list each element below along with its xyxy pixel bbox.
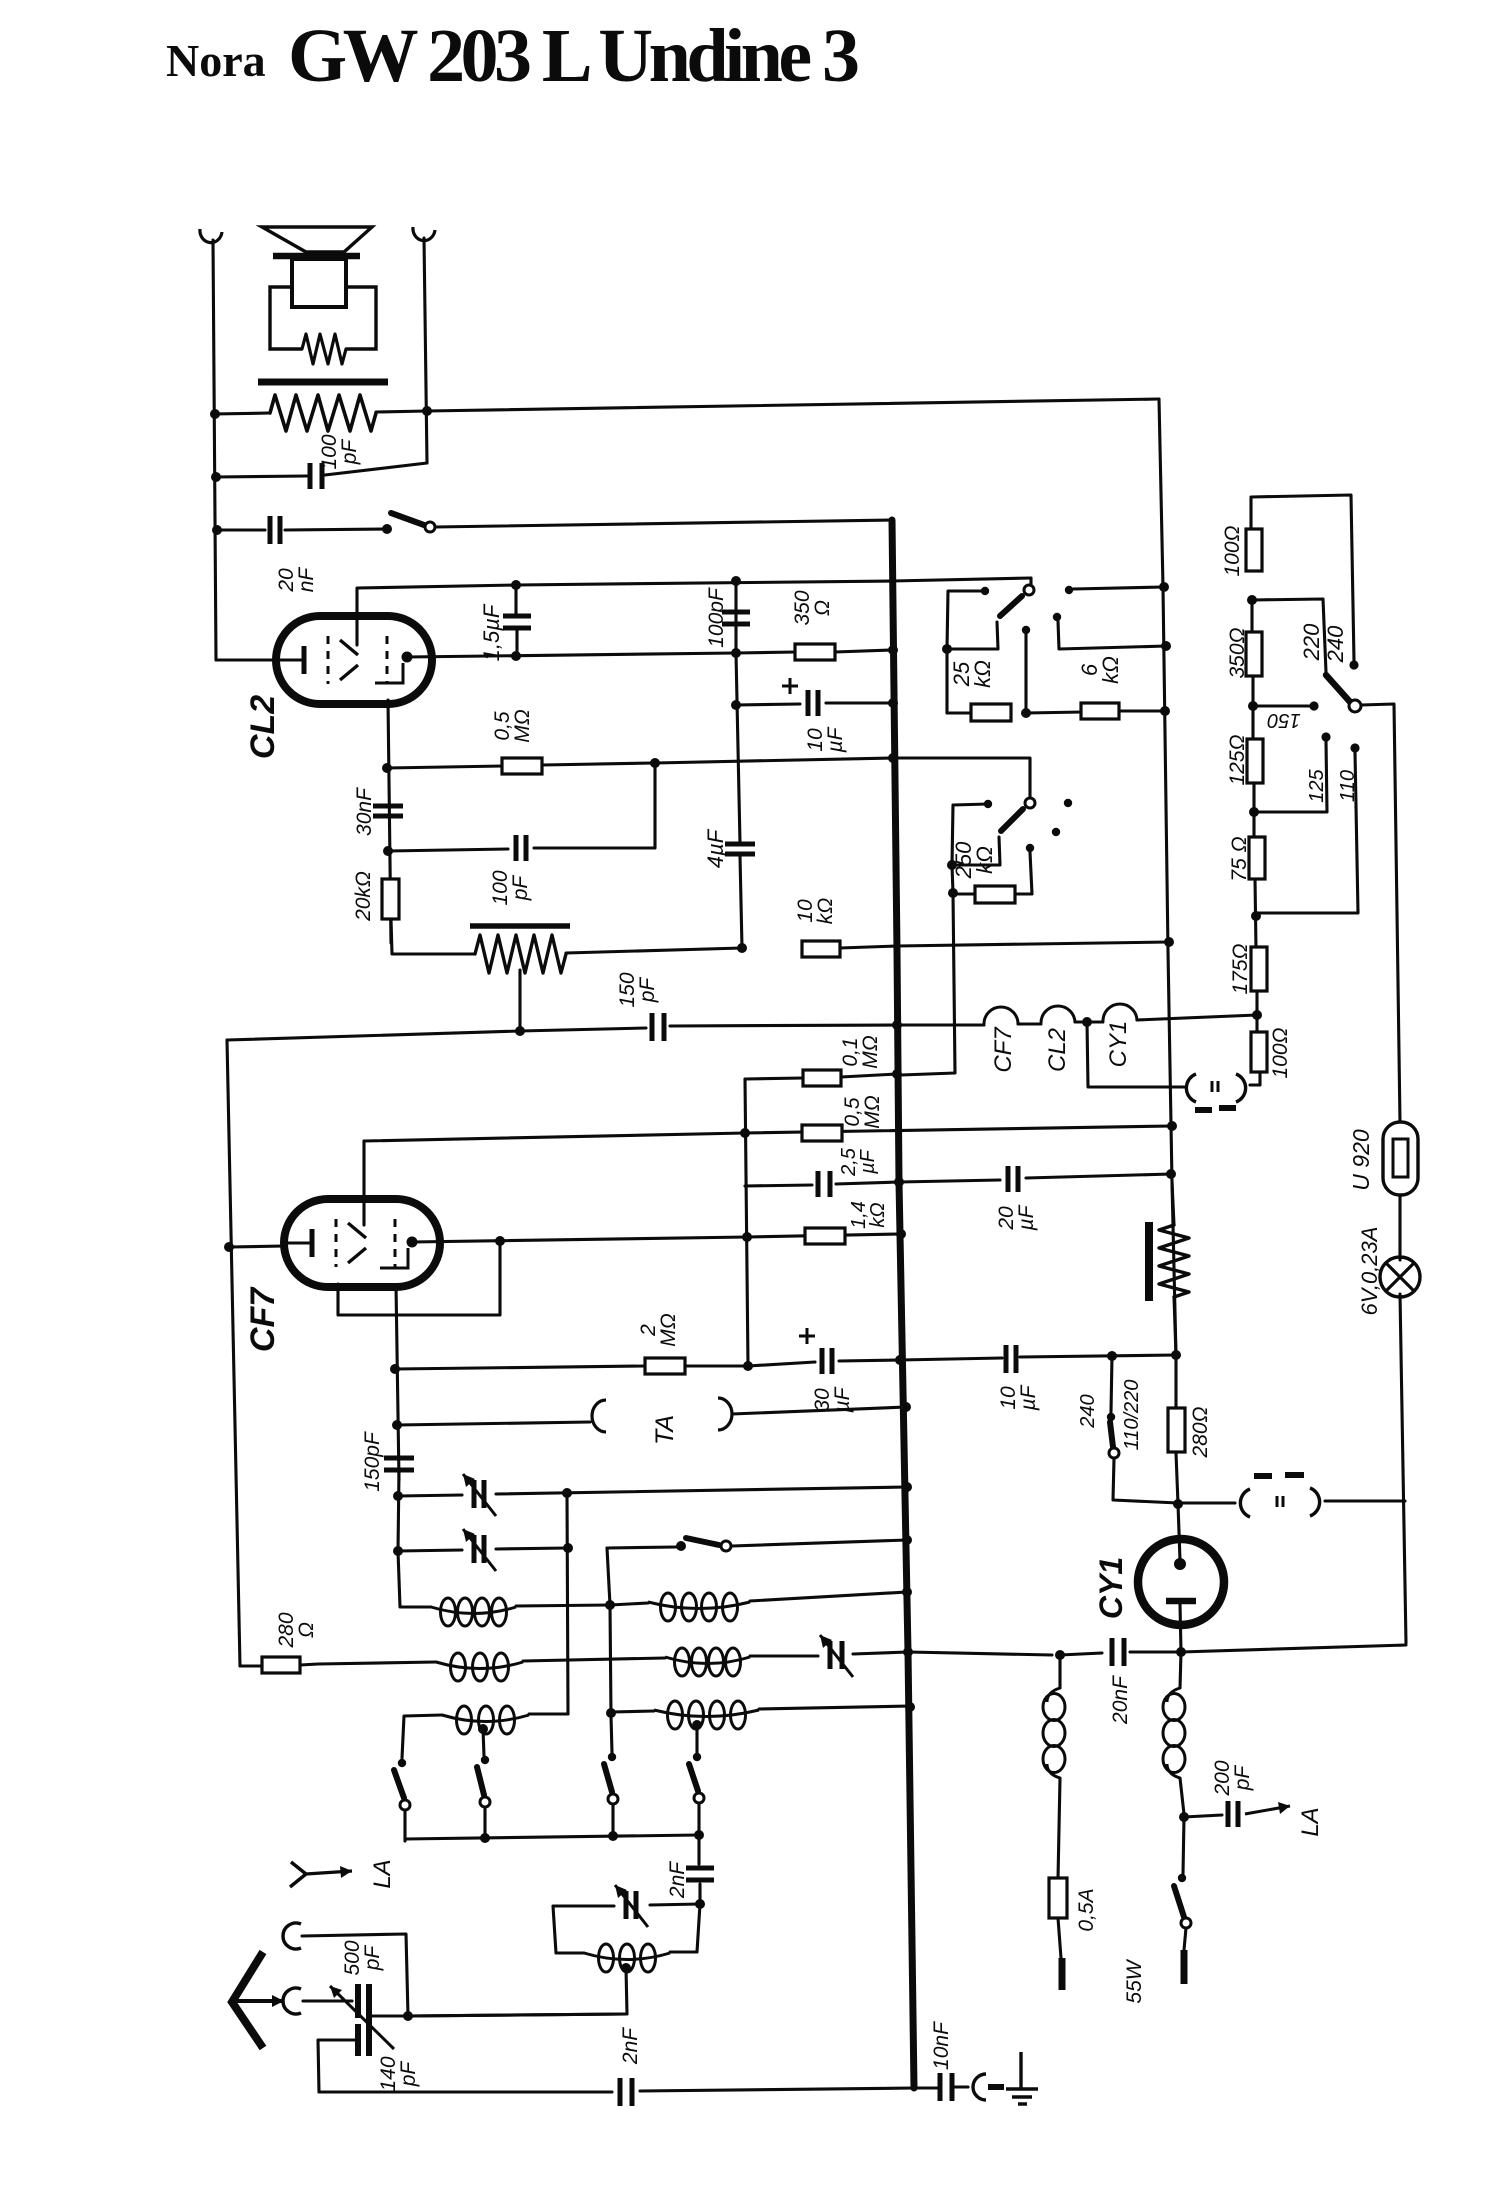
svg-text:110/220: 110/220: [1121, 1380, 1143, 1451]
svg-text:150pF: 150pF: [361, 1431, 384, 1492]
svg-text:0,5MΩ: 0,5MΩ: [491, 709, 534, 742]
svg-text:4µF: 4µF: [703, 828, 728, 868]
svg-text:240: 240: [1077, 1394, 1099, 1428]
svg-text:75 Ω: 75 Ω: [1228, 836, 1251, 881]
svg-text:10kΩ: 10kΩ: [794, 898, 837, 925]
svg-text:2nF: 2nF: [619, 2027, 642, 2065]
svg-text:20kΩ: 20kΩ: [352, 871, 375, 922]
svg-text:100Ω: 100Ω: [1269, 1027, 1292, 1078]
svg-text:LA: LA: [1297, 1807, 1324, 1836]
svg-text:100Ω: 100Ω: [1221, 525, 1244, 576]
svg-text:175Ω: 175Ω: [1229, 943, 1252, 994]
svg-text:20nF: 20nF: [275, 567, 318, 593]
svg-text:Nora: Nora: [166, 35, 266, 86]
svg-text:10nF: 10nF: [930, 2021, 953, 2070]
svg-text:U 920: U 920: [1348, 1129, 1374, 1191]
svg-text:LA: LA: [369, 1859, 396, 1888]
svg-text:CF7: CF7: [244, 1286, 282, 1352]
svg-text:CL2: CL2: [1044, 1028, 1071, 1072]
svg-text:30nF: 30nF: [353, 787, 376, 836]
svg-text:280Ω: 280Ω: [1189, 1406, 1212, 1458]
svg-text:125: 125: [1306, 768, 1328, 802]
svg-text:CY1: CY1: [1093, 1557, 1129, 1619]
svg-text:CY1: CY1: [1105, 1021, 1132, 1068]
svg-text:110: 110: [1337, 770, 1359, 802]
svg-text:125Ω: 125Ω: [1226, 734, 1249, 785]
svg-text:150: 150: [1267, 709, 1300, 731]
svg-text:55W: 55W: [1123, 1958, 1146, 2003]
svg-text:0,1MΩ: 0,1MΩ: [839, 1035, 882, 1068]
svg-text:10µF: 10µF: [804, 726, 847, 753]
svg-text:6V,0,23A: 6V,0,23A: [1357, 1227, 1382, 1316]
svg-text:240: 240: [1323, 625, 1348, 663]
svg-text:CF7: CF7: [990, 1026, 1017, 1073]
svg-text:GW 203 L Undine 3: GW 203 L Undine 3: [288, 14, 860, 98]
svg-text:20nF: 20nF: [1109, 1675, 1132, 1725]
svg-text:20µF: 20µF: [995, 1204, 1038, 1231]
svg-text:0,5A: 0,5A: [1075, 1888, 1098, 1931]
svg-text:10µF: 10µF: [997, 1384, 1040, 1411]
svg-text:250kΩ: 250kΩ: [951, 841, 997, 879]
svg-text:0,5MΩ: 0,5MΩ: [841, 1095, 884, 1128]
svg-text:CL2: CL2: [244, 695, 282, 759]
svg-text:2,5µF: 2,5µF: [838, 1147, 879, 1177]
svg-text:25kΩ: 25kΩ: [949, 660, 995, 688]
svg-text:2nF: 2nF: [666, 1861, 689, 1899]
svg-text:TA: TA: [651, 1415, 679, 1445]
svg-text:350Ω: 350Ω: [1226, 627, 1249, 678]
svg-text:100pF: 100pF: [705, 587, 728, 648]
svg-text:1,4kΩ: 1,4kΩ: [848, 1201, 889, 1229]
svg-text:1,5µF: 1,5µF: [479, 603, 504, 661]
svg-text:220: 220: [1299, 623, 1324, 661]
